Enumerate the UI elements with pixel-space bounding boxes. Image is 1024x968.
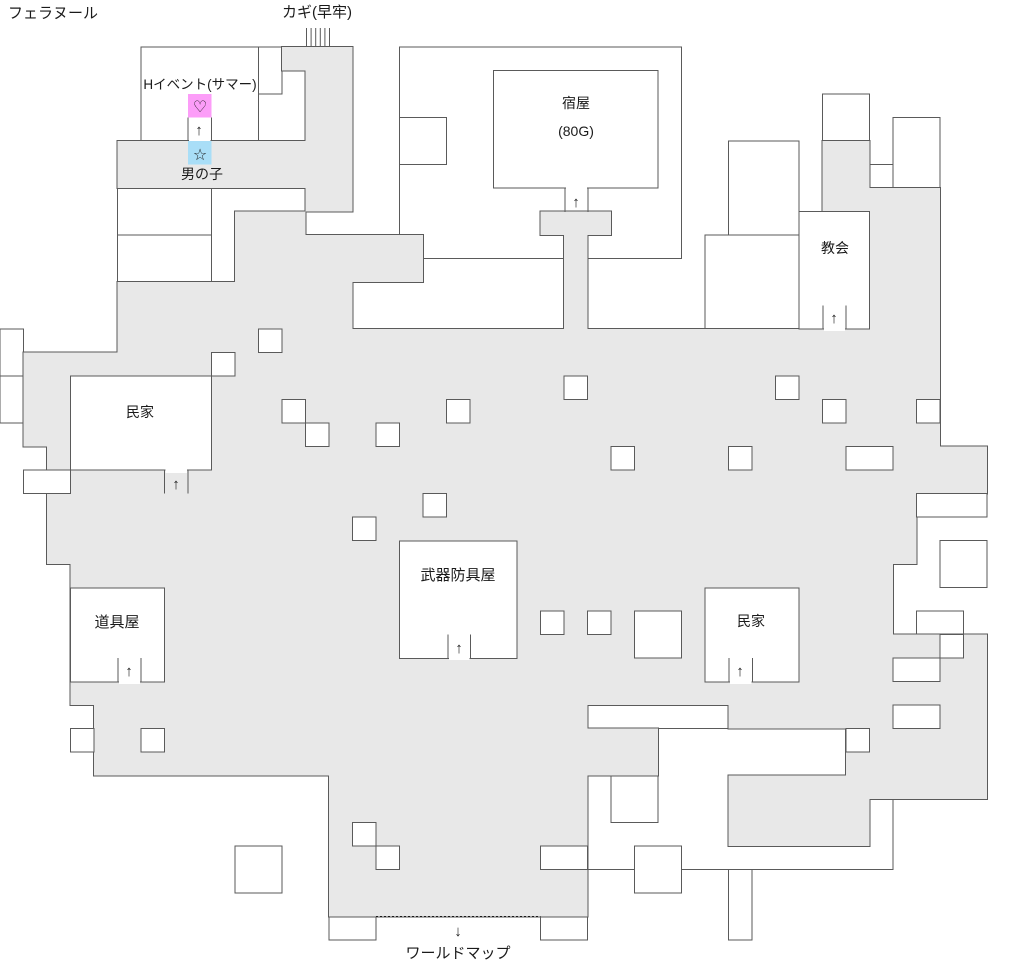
- room-outline: [729, 870, 753, 941]
- path-hole: [541, 611, 565, 635]
- heart-icon: ♡: [193, 99, 207, 116]
- room-outline: [0, 376, 24, 423]
- path-area: [870, 188, 941, 259]
- path-hole: [635, 611, 682, 658]
- room-outline: [541, 917, 588, 941]
- label-item-shop-label: 道具屋: [94, 614, 139, 631]
- room-outline: [611, 776, 658, 823]
- path-area: [823, 141, 870, 212]
- room-outline: [259, 47, 283, 94]
- path-hole: [588, 611, 612, 635]
- door-gap-house-left: [166, 468, 188, 473]
- label-inn-price-label: (80G): [558, 123, 594, 139]
- path-hole: [846, 447, 893, 471]
- path-hole: [729, 447, 753, 471]
- path-hole: [306, 423, 330, 447]
- path-hole: [846, 729, 870, 753]
- path-hole: [376, 423, 400, 447]
- room-outline: [893, 118, 940, 189]
- path-area: [306, 71, 353, 212]
- path-hole: [564, 376, 588, 400]
- entrance-arrow-icon-h-event-room: ↑: [195, 122, 203, 139]
- path-area: [729, 776, 870, 847]
- path-area: [282, 235, 423, 282]
- path-area: [282, 47, 353, 71]
- entrance-arrow-icon-house-right: ↑: [736, 663, 744, 680]
- path-hole: [24, 470, 71, 494]
- room-outline: [329, 917, 376, 941]
- path-area: [682, 329, 941, 400]
- room-outline: [0, 329, 24, 376]
- path-hole: [376, 846, 400, 870]
- page: { "town_name": "フェラヌール", "colors": { "ba…: [0, 0, 1024, 968]
- label-h-event-label: Hイベント(サマー): [143, 77, 256, 92]
- entrance-arrow-icon-item-shop: ↑: [125, 663, 133, 680]
- room-outline: [118, 188, 212, 235]
- path-area: [564, 235, 588, 329]
- path-area: [870, 259, 941, 330]
- room-outline: [823, 94, 870, 141]
- label-inn-label: 宿屋: [562, 95, 590, 111]
- door-gap-inn: [566, 186, 587, 191]
- room-outline: [400, 118, 447, 165]
- room-outline: [940, 541, 987, 588]
- path-hole: [423, 494, 447, 518]
- entrance-arrow-icon-house-left: ↑: [172, 476, 180, 493]
- label-jail-key-label: カギ(早牢): [282, 4, 352, 21]
- label-church-label: 教会: [821, 240, 849, 256]
- path-area: [94, 705, 329, 776]
- path-hole: [282, 400, 306, 424]
- path-hole: [823, 400, 847, 424]
- town-map-svg: ↑↑↑↑↑↑↑♡☆↓フェラヌールカギ(早牢)Hイベント(サマー)男の子宿屋(80…: [0, 0, 1024, 968]
- path-hole: [917, 400, 941, 424]
- path-hole: [141, 729, 165, 753]
- room-outline: [729, 141, 800, 235]
- label-world-map-label: ワールドマップ: [405, 945, 510, 962]
- path-hole: [611, 447, 635, 471]
- room-outline: [635, 846, 682, 893]
- path-hole: [776, 376, 800, 400]
- path-hole: [541, 846, 588, 870]
- star-icon: ☆: [193, 147, 207, 164]
- path-hole: [940, 635, 964, 659]
- path-area: [588, 729, 659, 776]
- path-area: [541, 212, 612, 236]
- world-exit-arrow-icon: ↓: [454, 923, 462, 940]
- path-hole: [212, 353, 236, 377]
- entrance-arrow-icon-inn: ↑: [572, 194, 580, 211]
- room-outline: [118, 235, 212, 282]
- label-weapon-armor-shop-label: 武器防具屋: [420, 567, 495, 584]
- path-hole: [917, 494, 988, 518]
- entrance-arrow-icon-church: ↑: [830, 310, 838, 327]
- room-outline: [705, 235, 799, 329]
- path-hole: [353, 823, 377, 847]
- entrance-arrow-icon-weapon-armor-shop: ↑: [455, 640, 463, 657]
- label-house-right-label: 民家: [737, 613, 765, 629]
- label-house-left-label: 民家: [126, 404, 154, 420]
- building-house-left: [71, 376, 212, 470]
- path-hole: [71, 729, 95, 753]
- path-hole: [893, 658, 940, 682]
- room-outline: [235, 846, 282, 893]
- path-hole: [447, 400, 471, 424]
- town-map-image: ↑↑↑↑↑↑↑♡☆↓フェラヌールカギ(早牢)Hイベント(サマー)男の子宿屋(80…: [0, 0, 1024, 968]
- path-hole: [893, 705, 940, 729]
- label-town-name: フェラヌール: [8, 5, 98, 22]
- path-area: [940, 447, 987, 494]
- path-hole: [259, 329, 283, 353]
- path-area: [329, 705, 588, 917]
- path-hole: [353, 517, 377, 541]
- label-boy-label: 男の子: [181, 166, 223, 182]
